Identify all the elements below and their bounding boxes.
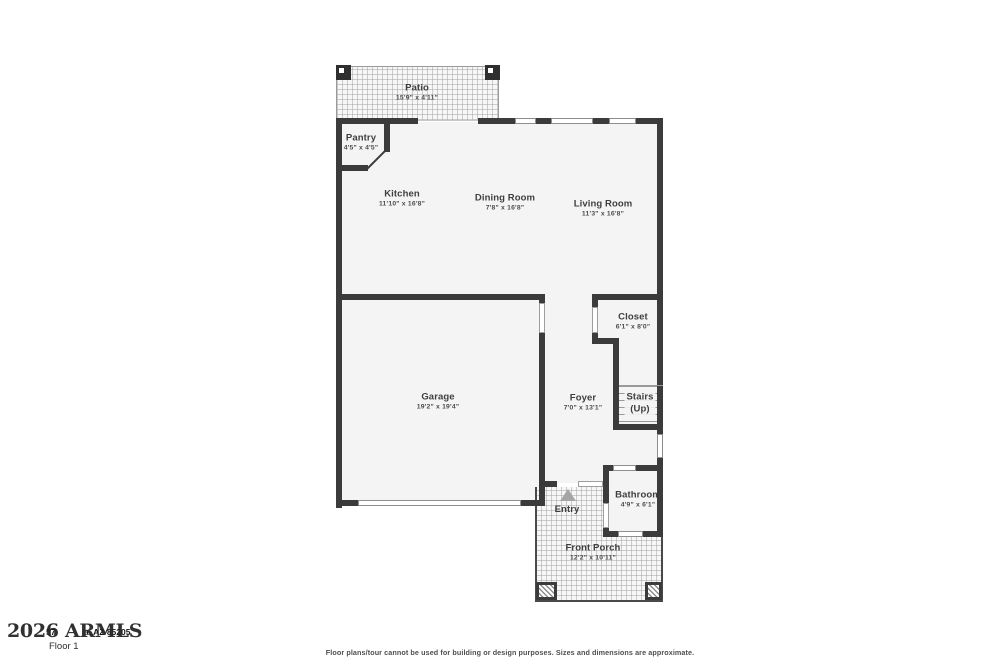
- front-door: [578, 481, 603, 487]
- wall: [643, 531, 663, 537]
- porch-post: [645, 582, 662, 600]
- patio-post-inset: [488, 68, 493, 73]
- room-name: Kitchen: [379, 188, 425, 200]
- room-label-garage: Garage 19'2" x 19'4": [417, 391, 460, 412]
- wall: [603, 531, 618, 537]
- patio-post: [485, 65, 500, 80]
- wall: [603, 465, 609, 503]
- wall: [336, 118, 418, 124]
- window: [618, 531, 643, 537]
- disclaimer-text: Floor plans/tour cannot be used for buil…: [326, 648, 694, 657]
- armls-watermark: 2026 ARMLS: [7, 620, 142, 642]
- room-name: Front Porch: [566, 542, 621, 554]
- room-name: Living Room: [574, 198, 633, 210]
- room-label-entry: Entry: [555, 504, 580, 516]
- room-label-bathroom: Bathroom 4'9" x 6'1": [615, 489, 661, 510]
- room-dims: 7'8" x 16'8": [475, 205, 535, 214]
- wall: [336, 118, 342, 508]
- garage-door-opening: [539, 303, 545, 333]
- wall: [539, 294, 545, 303]
- room-label-living-room: Living Room 11'3" x 16'8": [574, 198, 633, 219]
- bathroom-door-opening: [603, 503, 609, 528]
- porch-post: [536, 582, 557, 600]
- window: [609, 118, 636, 124]
- room-name: Stairs: [624, 392, 655, 404]
- room-name: Foyer: [564, 392, 603, 404]
- window: [515, 118, 536, 124]
- wall: [336, 294, 545, 300]
- room-dims: 15'9" x 4'11": [396, 95, 438, 104]
- room-name: Bathroom: [615, 489, 661, 501]
- room-dims: 12'2" x 10'11": [566, 555, 621, 564]
- room-label-pantry: Pantry 4'5" x 4'5": [344, 132, 379, 153]
- room-label-patio: Patio 15'9" x 4'11": [396, 82, 438, 103]
- wall: [657, 118, 663, 434]
- room-dims: 11'3" x 16'8": [574, 211, 633, 220]
- room-label-kitchen: Kitchen 11'10" x 16'8": [379, 188, 425, 209]
- room-name: Garage: [417, 391, 460, 403]
- wall: [636, 465, 663, 471]
- wall: [545, 481, 557, 487]
- room-name: Pantry: [344, 132, 379, 144]
- room-label-dining-room: Dining Room 7'8" x 16'8": [475, 192, 535, 213]
- room-dims: 11'10" x 16'8": [379, 201, 425, 210]
- patio-post-inset: [339, 68, 344, 73]
- patio-post: [336, 65, 351, 80]
- wall: [478, 118, 515, 124]
- room-name: Dining Room: [475, 192, 535, 204]
- window: [613, 465, 636, 471]
- wall: [536, 118, 551, 124]
- floor-plan-page: Patio 15'9" x 4'11" Pantry 4'5" x 4'5" K…: [0, 0, 1000, 667]
- stairs-direction: (Up): [624, 404, 655, 416]
- room-dims: 19'2" x 19'4": [417, 404, 460, 413]
- window: [551, 118, 593, 124]
- room-name: Patio: [396, 82, 438, 94]
- room-dims: 7'0" x 13'1": [564, 405, 603, 414]
- room-label-front-porch: Front Porch 12'2" x 10'11": [566, 542, 621, 563]
- room-dims: 4'9" x 6'1": [615, 502, 661, 511]
- porch-edge-bottom: [535, 600, 663, 602]
- room-dims: 4'5" x 4'5": [344, 145, 379, 154]
- room-label-foyer: Foyer 7'0" x 13'1": [564, 392, 603, 413]
- wall: [592, 294, 598, 307]
- closet-door-opening: [592, 307, 598, 333]
- room-name: Entry: [555, 504, 580, 516]
- garage-vehicle-door: [358, 500, 521, 506]
- room-label-closet: Closet 6'1" x 8'0": [616, 311, 651, 332]
- wall: [338, 165, 368, 171]
- wall: [384, 121, 390, 152]
- floor-label: Floor 1: [49, 641, 79, 652]
- window: [657, 434, 663, 458]
- room-label-stairs: Stairs (Up): [624, 392, 655, 417]
- wall: [619, 424, 663, 430]
- wall: [521, 500, 545, 506]
- entry-arrow-icon: [560, 489, 576, 501]
- room-dims: 6'1" x 8'0": [616, 324, 651, 333]
- wall: [336, 500, 358, 506]
- wall: [593, 118, 609, 124]
- room-name: Closet: [616, 311, 651, 323]
- wall: [592, 294, 663, 300]
- patio-door-opening: [418, 120, 478, 121]
